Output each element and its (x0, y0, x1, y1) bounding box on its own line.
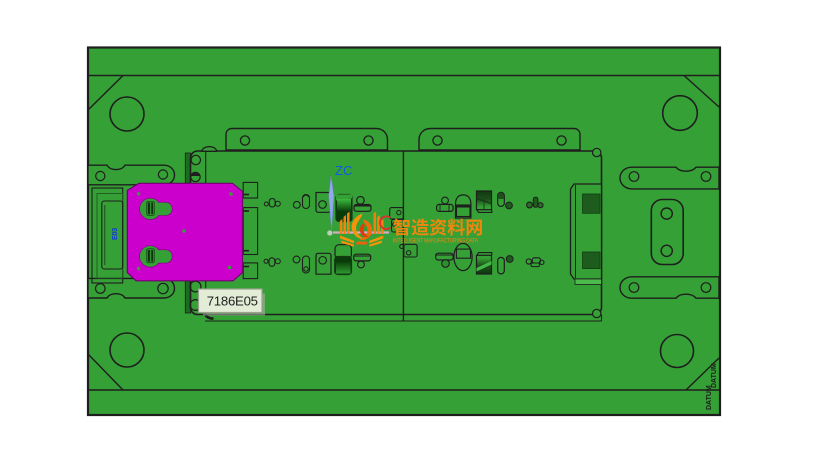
svg-text:INTELLIGENT MANUFACTURING DATA: INTELLIGENT MANUFACTURING DATA (393, 239, 478, 245)
svg-text:7186E05: 7186E05 (207, 294, 258, 309)
svg-text:DATUM: DATUM (711, 363, 718, 388)
svg-text:E03: E03 (110, 228, 119, 240)
svg-text:DATUM: DATUM (706, 385, 713, 410)
svg-text:ZC: ZC (335, 163, 352, 178)
